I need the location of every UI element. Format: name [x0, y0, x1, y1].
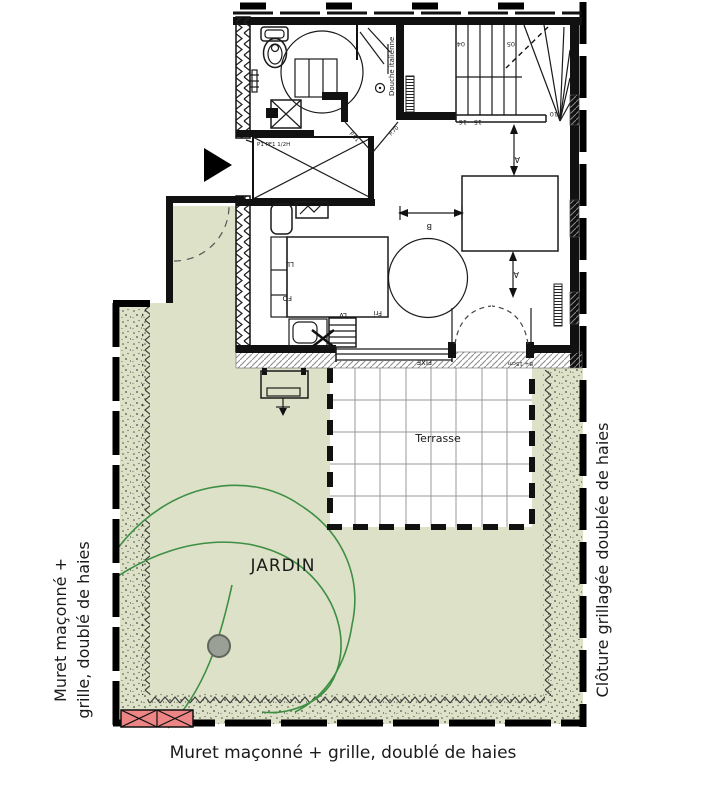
svg-text:A: A: [513, 270, 519, 279]
shower-screen: [295, 59, 337, 97]
fixed-island: [462, 176, 558, 251]
svg-text:10: 10: [550, 110, 558, 118]
wall-bottom-right: [530, 345, 578, 353]
water-heater: [271, 204, 292, 234]
boundary-left-cap: [113, 300, 150, 307]
fence-zigzag-right: [543, 370, 551, 696]
wall-gate-top: [166, 196, 244, 203]
wall-right-window-3: [570, 292, 579, 324]
svg-text:16: 16: [459, 118, 467, 126]
sink: [289, 319, 327, 346]
bottom-boundary-label: Muret maçonné + grille, doublé de haies: [170, 743, 517, 763]
understairs-wall: [396, 112, 456, 120]
radiator-living: [554, 284, 562, 326]
hall-cupboard: [236, 112, 456, 206]
shower-slope-lines: [360, 28, 390, 74]
terrace: Terrasse: [330, 368, 532, 527]
toilet: [261, 27, 288, 68]
fixed-window-band: [336, 347, 452, 362]
kitchen-counter: [287, 237, 388, 317]
staircase: 04 05 16 15 10: [456, 25, 570, 126]
left-boundary-label: Muret maçonné + grille, doublé de haies: [51, 541, 93, 718]
shower-tray: [266, 100, 301, 128]
round-table: [389, 239, 468, 318]
door-post-right: [526, 342, 534, 358]
stair-handrail: [456, 115, 546, 122]
bathroom: Douche italienne: [250, 25, 414, 128]
dimension-a-upper: A: [510, 124, 520, 176]
svg-text:04: 04: [457, 40, 465, 48]
right-boundary-label: Clôture grillagée doublée de haies: [593, 423, 612, 698]
sill-label: B+ 15cm: [507, 360, 533, 366]
door-post-left: [448, 342, 456, 358]
floor-plan-page: JARDIN Terrasse: [0, 0, 710, 800]
svg-text:LL: LL: [286, 260, 294, 268]
garden-label: JARDIN: [250, 556, 316, 576]
wall-right-window-1: [570, 95, 579, 125]
entrance-arrow-icon: [204, 148, 232, 182]
cupboard-code: P1 PF1 1/2H: [257, 142, 290, 148]
partition-shower-right: [396, 25, 404, 117]
wall-left-upper: [236, 17, 250, 138]
floor-plan-drawing: JARDIN Terrasse: [0, 0, 710, 800]
counter-left-column: [271, 237, 287, 317]
towel-rail: [250, 70, 259, 92]
stair-risers: [456, 25, 522, 115]
svg-text:grille, doublé de haies: grille, doublé de haies: [74, 541, 93, 718]
fixed-window-label: FIXE: [417, 358, 432, 366]
dishwasher-box: [329, 318, 356, 347]
living-room: A A B: [389, 124, 563, 344]
svg-text:B: B: [427, 222, 433, 231]
wall-top: [233, 17, 582, 25]
kitchen: LL FO Fri LV: [271, 202, 388, 347]
fence-zigzag-left: [142, 305, 150, 695]
svg-text:FO: FO: [282, 294, 292, 302]
svg-text:Muret maçonné +: Muret maçonné +: [51, 558, 70, 702]
french-doors: [452, 306, 531, 344]
partition-shower-jog-v: [341, 92, 348, 122]
wall-gate-left: [166, 196, 173, 303]
radiator-hall: [406, 76, 414, 112]
stair-step-numbers: 04 05 16 15 10: [457, 40, 558, 126]
wall-right-window-2: [570, 200, 579, 237]
dimension-b: B: [398, 206, 464, 231]
svg-text:15: 15: [474, 118, 482, 126]
svg-text:05: 05: [507, 40, 515, 48]
stair-winders: [524, 25, 570, 121]
door-code-right: P.70: [388, 125, 401, 138]
svg-text:Fri: Fri: [374, 309, 382, 317]
appliance-labels: LL FO Fri LV: [282, 260, 382, 319]
fence-zigzag-bottom: [148, 696, 545, 704]
svg-text:A: A: [514, 155, 520, 164]
terrace-label: Terrasse: [414, 432, 461, 445]
dimension-a-lower: A: [509, 251, 519, 298]
wall-left-lower: [236, 196, 250, 352]
hedge-strip-right: [548, 368, 583, 724]
tree: [208, 635, 230, 657]
supply-cross: [312, 330, 334, 347]
brick-wall-segment: [121, 710, 193, 727]
shower-label: Douche italienne: [388, 37, 396, 96]
